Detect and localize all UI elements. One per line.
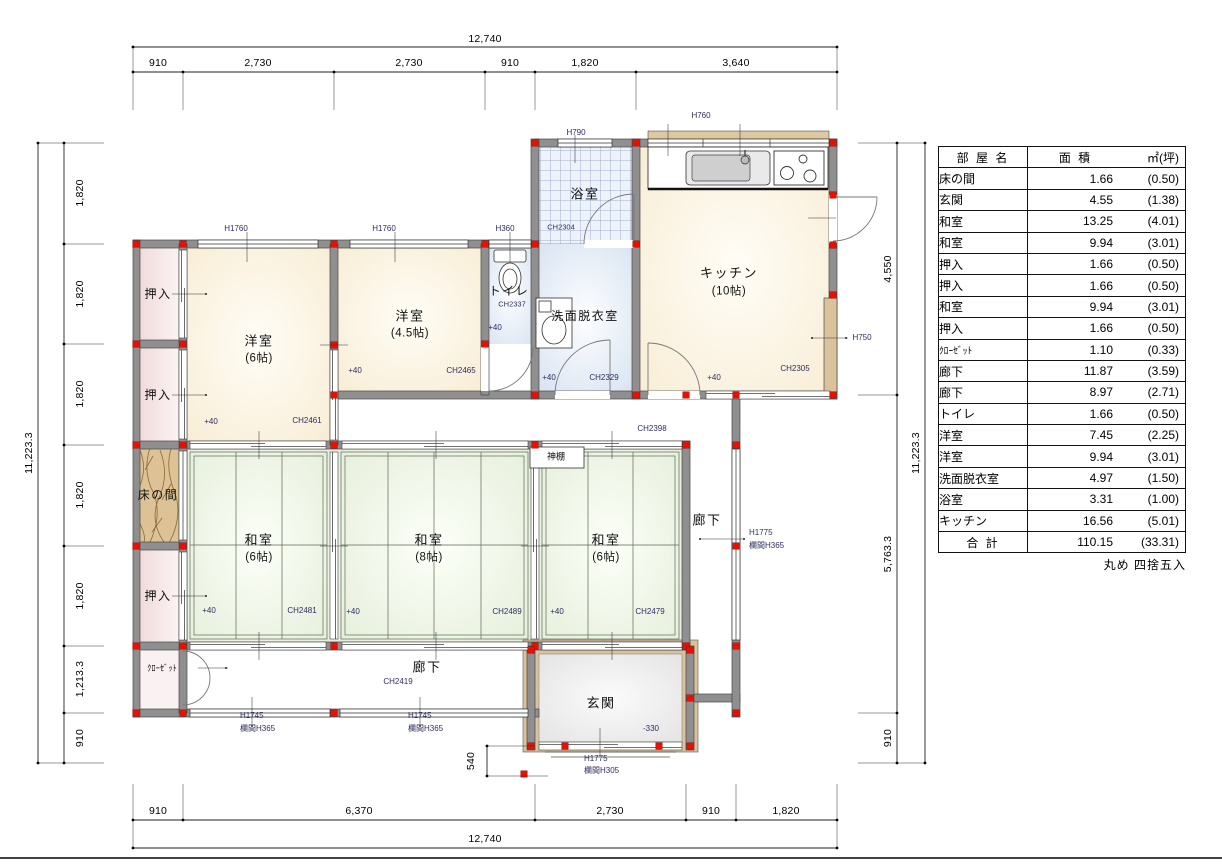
opening-height-label: H1775 bbox=[749, 529, 773, 537]
tsubo-value: (2.25) bbox=[1127, 428, 1185, 442]
opening-height-label: H1745 bbox=[408, 712, 432, 720]
dim-right-seg: 910 bbox=[883, 729, 894, 747]
table-cell-area: 1.66(0.50) bbox=[1028, 403, 1186, 424]
tsubo-value: (0.50) bbox=[1127, 407, 1185, 421]
ranma-label: 欄間H365 bbox=[749, 542, 784, 550]
table-cell-room-name: 和室 bbox=[939, 211, 1028, 232]
room-size-yoshitsu45: (4.5帖) bbox=[391, 328, 429, 340]
table-cell-room-name: 洋室 bbox=[939, 446, 1028, 467]
room-label-toilet: トイレ bbox=[489, 285, 530, 297]
dim-top-seg: 2,730 bbox=[244, 58, 271, 69]
opening-height-label: H1775 bbox=[584, 755, 608, 763]
table-row: 押入1.66(0.50) bbox=[939, 275, 1186, 296]
room-size-yoshitsu6: (6帖) bbox=[245, 353, 273, 365]
tsubo-value: (3.01) bbox=[1127, 236, 1185, 250]
table-row: 和室9.94(3.01) bbox=[939, 232, 1186, 253]
table-cell-room-name: キッチン bbox=[939, 510, 1028, 531]
room-label-oshiire: 押入 bbox=[144, 288, 171, 300]
table-row: 和室13.25(4.01) bbox=[939, 211, 1186, 232]
table-cell-area: 9.94(3.01) bbox=[1028, 232, 1186, 253]
table-row: 和室9.94(3.01) bbox=[939, 296, 1186, 317]
table-row: 洗面脱衣室4.97(1.50) bbox=[939, 467, 1186, 488]
ch-label: CH2337 bbox=[498, 300, 526, 308]
table-cell-room-name: 床の間 bbox=[939, 168, 1028, 189]
area-value: 110.15 bbox=[1028, 535, 1127, 549]
room-label-oshiire: 押入 bbox=[144, 590, 171, 602]
dim-top-seg: 1,820 bbox=[571, 58, 598, 69]
table-cell-area: 110.15(33.31) bbox=[1028, 532, 1186, 553]
window-height-label: H1760 bbox=[372, 225, 396, 233]
level-label: +40 bbox=[488, 324, 502, 332]
area-value: 1.66 bbox=[1028, 172, 1127, 186]
table-cell-area: 1.66(0.50) bbox=[1028, 318, 1186, 339]
room-label-corridor-east: 廊下 bbox=[692, 514, 721, 527]
table-cell-room-name: 廊下 bbox=[939, 382, 1028, 403]
room-label-yoshitsu6: 洋室 bbox=[244, 335, 273, 348]
window-height-label: H790 bbox=[566, 129, 585, 137]
table-cell-area: 1.66(0.50) bbox=[1028, 253, 1186, 274]
area-value: 1.10 bbox=[1028, 343, 1127, 357]
table-cell-room-name: 押入 bbox=[939, 253, 1028, 274]
dim-bottom-seg: 1,820 bbox=[772, 806, 799, 817]
dim-left-seg: 1,820 bbox=[75, 380, 86, 407]
dim-bottom-seg: 2,730 bbox=[596, 806, 623, 817]
table-row: 浴室3.31(1.00) bbox=[939, 489, 1186, 510]
ch-label: CH2489 bbox=[492, 608, 521, 616]
dim-right-seg: 5,763.3 bbox=[883, 536, 894, 572]
room-label-kitchen: キッチン bbox=[700, 267, 758, 280]
table-cell-room-name: 押入 bbox=[939, 275, 1028, 296]
ch-label: CH2461 bbox=[292, 417, 321, 425]
level-label: +40 bbox=[542, 374, 556, 382]
room-label-yoshitsu45: 洋室 bbox=[395, 310, 424, 323]
table-row: 床の間1.66(0.50) bbox=[939, 168, 1186, 189]
table-cell-area: 3.31(1.00) bbox=[1028, 489, 1186, 510]
level-label: +40 bbox=[202, 607, 216, 615]
tsubo-value: (0.50) bbox=[1127, 321, 1185, 335]
table-row: トイレ1.66(0.50) bbox=[939, 403, 1186, 424]
table-header-unit: ㎡(坪) bbox=[1123, 149, 1185, 166]
area-value: 7.45 bbox=[1028, 428, 1127, 442]
table-cell-area: 16.56(5.01) bbox=[1028, 510, 1186, 531]
table-row: 廊下8.97(2.71) bbox=[939, 382, 1186, 403]
room-size-kitchen: (10帖) bbox=[712, 286, 746, 298]
dim-top-seg: 910 bbox=[149, 58, 167, 69]
area-table-body: 床の間1.66(0.50)玄関4.55(1.38)和室13.25(4.01)和室… bbox=[939, 168, 1186, 553]
opening-height-label: H1745 bbox=[240, 712, 264, 720]
level-label: +40 bbox=[346, 608, 360, 616]
area-table: 部 屋 名 面 積 ㎡(坪) 床の間1.66(0.50)玄関4.55(1.38)… bbox=[938, 146, 1186, 553]
area-value: 3.31 bbox=[1028, 492, 1127, 506]
window-height-label: H1760 bbox=[224, 225, 248, 233]
dim-right-seg: 4,550 bbox=[883, 255, 894, 282]
dim-left-seg: 1,820 bbox=[75, 481, 86, 508]
dim-entry-step: 540 bbox=[466, 752, 477, 770]
room-size-washitsu8: (8帖) bbox=[415, 552, 443, 564]
dim-right-total: 11,223.3 bbox=[911, 432, 922, 474]
table-cell-area: 11.87(3.59) bbox=[1028, 360, 1186, 381]
table-header-room-name: 部 屋 名 bbox=[939, 147, 1028, 168]
tsubo-value: (0.50) bbox=[1127, 279, 1185, 293]
table-cell-room-name: 洗面脱衣室 bbox=[939, 467, 1028, 488]
level-label: +40 bbox=[348, 367, 362, 375]
room-label-bath: 浴室 bbox=[570, 188, 599, 201]
table-row: 押入1.66(0.50) bbox=[939, 318, 1186, 339]
table-row: 玄関4.55(1.38) bbox=[939, 189, 1186, 210]
area-value: 4.97 bbox=[1028, 471, 1127, 485]
table-cell-room-name: 押入 bbox=[939, 318, 1028, 339]
dim-top-seg: 3,640 bbox=[722, 58, 749, 69]
table-cell-area: 7.45(2.25) bbox=[1028, 425, 1186, 446]
dim-bottom-seg: 6,370 bbox=[345, 806, 372, 817]
area-value: 1.66 bbox=[1028, 407, 1127, 421]
ch-label: CH2419 bbox=[383, 678, 412, 686]
room-label-closet: ｸﾛｰｾﾞｯﾄ bbox=[147, 664, 177, 673]
level-label: +40 bbox=[707, 374, 721, 382]
room-label-tokonoma: 床の間 bbox=[138, 489, 179, 501]
table-cell-area: 13.25(4.01) bbox=[1028, 211, 1186, 232]
area-value: 8.97 bbox=[1028, 385, 1127, 399]
table-total-row: 合 計110.15(33.31) bbox=[939, 532, 1186, 553]
tsubo-value: (1.38) bbox=[1127, 193, 1185, 207]
table-row: 洋室7.45(2.25) bbox=[939, 425, 1186, 446]
dim-left-seg: 910 bbox=[75, 729, 86, 747]
dim-left-seg: 1,820 bbox=[75, 582, 86, 609]
ch-label: CH2304 bbox=[547, 223, 575, 231]
tsubo-value: (0.50) bbox=[1127, 172, 1185, 186]
level-label: -330 bbox=[643, 725, 659, 733]
area-value: 4.55 bbox=[1028, 193, 1127, 207]
dim-bottom-total: 12,740 bbox=[468, 834, 501, 845]
tsubo-value: (3.59) bbox=[1127, 364, 1185, 378]
ranma-label: 欄間H365 bbox=[240, 725, 275, 733]
dim-top-seg: 910 bbox=[501, 58, 519, 69]
kitchen-counter bbox=[648, 147, 828, 189]
table-cell-room-name: 廊下 bbox=[939, 360, 1028, 381]
tsubo-value: (5.01) bbox=[1127, 514, 1185, 528]
tsubo-value: (3.01) bbox=[1127, 300, 1185, 314]
ch-label: CH2481 bbox=[287, 607, 316, 615]
area-value: 9.94 bbox=[1028, 450, 1127, 464]
tsubo-value: (0.33) bbox=[1127, 343, 1185, 357]
dim-top-total: 12,740 bbox=[468, 34, 501, 45]
room-label-kamidana: 神棚 bbox=[547, 453, 565, 462]
ch-label: CH2329 bbox=[589, 374, 618, 382]
table-row: 廊下11.87(3.59) bbox=[939, 360, 1186, 381]
dim-top-seg: 2,730 bbox=[395, 58, 422, 69]
table-cell-room-name: 洋室 bbox=[939, 425, 1028, 446]
table-cell-room-name: 合 計 bbox=[939, 532, 1028, 553]
floor-plan-page: 12,740 910 2,730 2,730 910 1,820 3,640 1… bbox=[0, 0, 1222, 866]
room-label-washroom: 洗面脱衣室 bbox=[551, 310, 619, 322]
room-label-genkan: 玄関 bbox=[586, 697, 615, 710]
ch-label: CH2479 bbox=[635, 608, 664, 616]
ch-label: CH2305 bbox=[780, 365, 809, 373]
door-height-label: H750 bbox=[852, 334, 871, 342]
tsubo-value: (3.01) bbox=[1127, 450, 1185, 464]
table-cell-room-name: 和室 bbox=[939, 232, 1028, 253]
area-value: 9.94 bbox=[1028, 300, 1127, 314]
dim-left-total: 11,223.3 bbox=[24, 432, 35, 474]
ranma-label: 欄間H305 bbox=[584, 767, 619, 775]
area-value: 1.66 bbox=[1028, 279, 1127, 293]
table-cell-area: 1.66(0.50) bbox=[1028, 275, 1186, 296]
table-cell-room-name: トイレ bbox=[939, 403, 1028, 424]
dim-bottom-seg: 910 bbox=[702, 806, 720, 817]
table-row: 洋室9.94(3.01) bbox=[939, 446, 1186, 467]
tsubo-value: (33.31) bbox=[1127, 535, 1185, 549]
table-cell-room-name: ｸﾛｰｾﾞｯﾄ bbox=[939, 339, 1028, 360]
room-label-oshiire: 押入 bbox=[144, 389, 171, 401]
table-row: キッチン16.56(5.01) bbox=[939, 510, 1186, 531]
ch-label: CH2465 bbox=[446, 367, 475, 375]
area-table-wrap: 部 屋 名 面 積 ㎡(坪) 床の間1.66(0.50)玄関4.55(1.38)… bbox=[938, 146, 1188, 573]
table-cell-area: 9.94(3.01) bbox=[1028, 446, 1186, 467]
room-size-washitsu6-left: (6帖) bbox=[245, 552, 273, 564]
room-label-corridor-south: 廊下 bbox=[412, 661, 441, 674]
table-cell-area: 4.55(1.38) bbox=[1028, 189, 1186, 210]
window-height-label: H360 bbox=[495, 225, 514, 233]
table-header-row: 部 屋 名 面 積 ㎡(坪) bbox=[939, 147, 1186, 168]
dim-bottom-seg: 910 bbox=[149, 806, 167, 817]
area-value: 1.66 bbox=[1028, 321, 1127, 335]
area-value: 1.66 bbox=[1028, 257, 1127, 271]
table-row: 押入1.66(0.50) bbox=[939, 253, 1186, 274]
dim-left-seg: 1,213.3 bbox=[75, 661, 86, 697]
tsubo-value: (1.00) bbox=[1127, 492, 1185, 506]
dim-left-seg: 1,820 bbox=[75, 280, 86, 307]
area-value: 9.94 bbox=[1028, 236, 1127, 250]
tsubo-value: (2.71) bbox=[1127, 385, 1185, 399]
table-cell-room-name: 浴室 bbox=[939, 489, 1028, 510]
tsubo-value: (1.50) bbox=[1127, 471, 1185, 485]
table-cell-area: 9.94(3.01) bbox=[1028, 296, 1186, 317]
table-cell-room-name: 和室 bbox=[939, 296, 1028, 317]
ranma-label: 欄間H365 bbox=[408, 725, 443, 733]
window-height-label: H760 bbox=[691, 112, 710, 120]
tsubo-value: (0.50) bbox=[1127, 257, 1185, 271]
table-header-area: 面 積 bbox=[1028, 149, 1123, 166]
area-value: 16.56 bbox=[1028, 514, 1127, 528]
table-cell-area: 4.97(1.50) bbox=[1028, 467, 1186, 488]
room-size-washitsu6-right: (6帖) bbox=[592, 552, 620, 564]
genkan-step-lines bbox=[545, 752, 676, 757]
room-label-washitsu6-right: 和室 bbox=[591, 534, 620, 547]
level-label: +40 bbox=[550, 608, 564, 616]
table-cell-area: 1.10(0.33) bbox=[1028, 339, 1186, 360]
room-label-washitsu6-left: 和室 bbox=[244, 534, 273, 547]
table-cell-area: 1.66(0.50) bbox=[1028, 168, 1186, 189]
room-label-washitsu8: 和室 bbox=[414, 534, 443, 547]
area-value: 13.25 bbox=[1028, 214, 1127, 228]
area-value: 11.87 bbox=[1028, 364, 1127, 378]
table-cell-room-name: 玄関 bbox=[939, 189, 1028, 210]
level-label: +40 bbox=[204, 418, 218, 426]
stove-icon bbox=[774, 151, 824, 185]
table-row: ｸﾛｰｾﾞｯﾄ1.10(0.33) bbox=[939, 339, 1186, 360]
rounding-note: 丸め 四捨五入 bbox=[938, 556, 1186, 573]
washbasin-icon bbox=[536, 298, 572, 348]
table-cell-area: 8.97(2.71) bbox=[1028, 382, 1186, 403]
ch-label: CH2398 bbox=[637, 425, 666, 433]
dim-left-seg: 1,820 bbox=[75, 179, 86, 206]
tsubo-value: (4.01) bbox=[1127, 214, 1185, 228]
